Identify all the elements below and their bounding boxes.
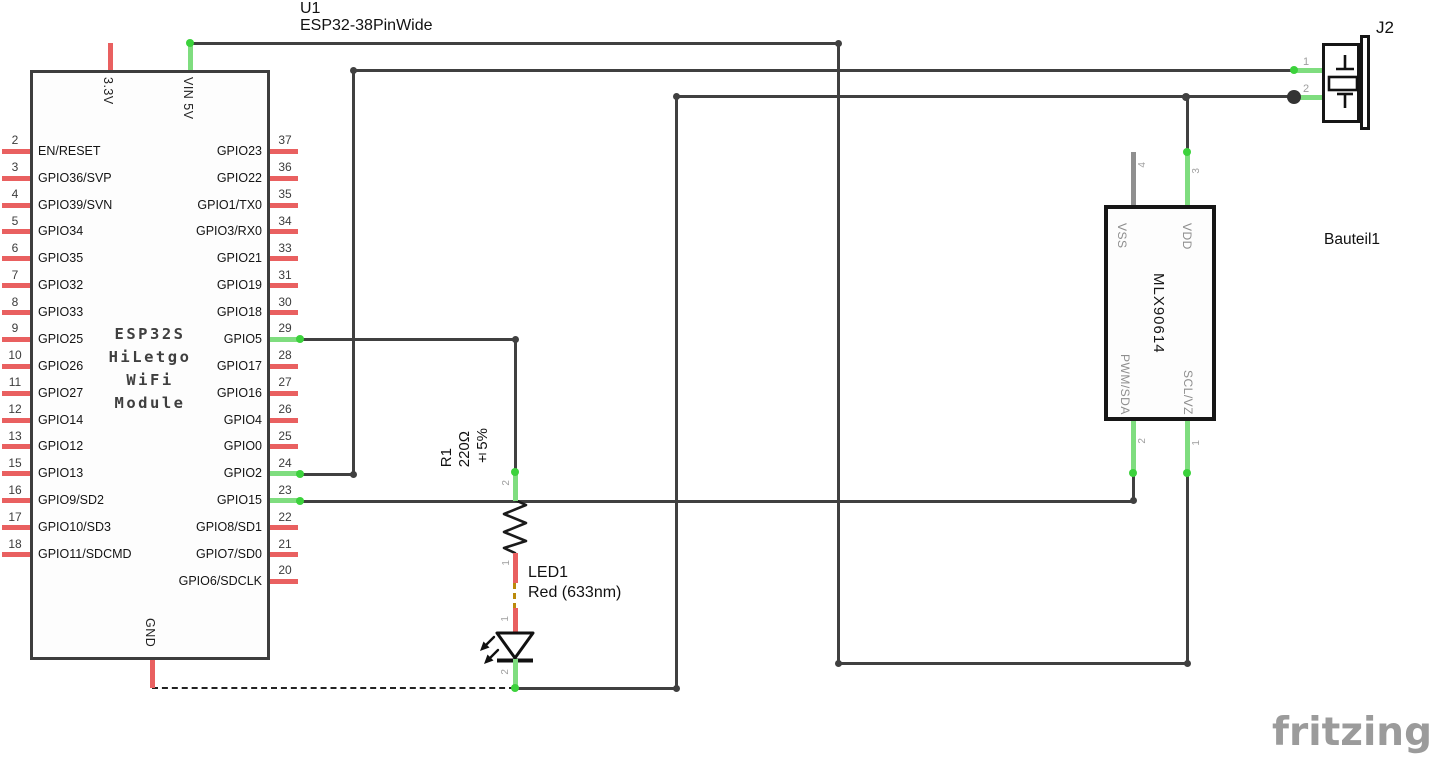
esp32-pin-stub-GPIO4[interactable] bbox=[270, 418, 298, 423]
esp32-pin-stub-GPIO33[interactable] bbox=[2, 310, 30, 315]
esp32-pin-label: GPIO3/RX0 bbox=[130, 224, 262, 239]
esp32-pin-label: GPIO25 bbox=[38, 332, 83, 347]
pin-stub-3v3[interactable] bbox=[108, 43, 113, 70]
esp32-pin-label: GPIO10/SD3 bbox=[38, 520, 111, 535]
esp32-pin-number: 12 bbox=[2, 402, 28, 416]
esp32-pin-label: GPIO35 bbox=[38, 251, 83, 266]
resistor-r1[interactable] bbox=[498, 498, 532, 556]
esp32-pin-stub-GPIO1/TX0[interactable] bbox=[270, 203, 298, 208]
pin-stub-gnd[interactable] bbox=[150, 660, 155, 688]
esp32-pin-label: GPIO32 bbox=[38, 278, 83, 293]
sensor-part-label[interactable]: Bauteil1 bbox=[1324, 231, 1380, 249]
esp32-pin-number: 36 bbox=[272, 160, 298, 174]
esp32-pin-number: 25 bbox=[272, 429, 298, 443]
wire[interactable] bbox=[190, 42, 838, 45]
j2-jack-symbol bbox=[1322, 43, 1360, 123]
u1-value-label[interactable]: ESP32-38PinWide bbox=[300, 17, 433, 35]
led1-ref-label[interactable]: LED1 bbox=[528, 564, 568, 582]
wire[interactable] bbox=[300, 500, 1133, 503]
esp32-pin-label: GPIO5 bbox=[130, 332, 262, 347]
esp32-pin-stub-GPIO5[interactable] bbox=[270, 337, 298, 342]
esp32-pin-number: 15 bbox=[2, 456, 28, 470]
r1-ref-label[interactable]: R1 bbox=[438, 448, 456, 467]
esp32-pin-label: GPIO16 bbox=[130, 386, 262, 401]
esp32-pin-stub-GPIO12[interactable] bbox=[2, 444, 30, 449]
esp32-pin-stub-GPIO22[interactable] bbox=[270, 176, 298, 181]
fritzing-watermark: fritzing bbox=[1272, 710, 1432, 755]
esp32-pin-number: 20 bbox=[272, 563, 298, 577]
esp32-pin-number: 21 bbox=[272, 537, 298, 551]
esp32-pin-stub-GPIO14[interactable] bbox=[2, 418, 30, 423]
esp32-pin-number: 23 bbox=[272, 483, 298, 497]
esp32-pin-stub-GPIO27[interactable] bbox=[2, 391, 30, 396]
j2-ref-label[interactable]: J2 bbox=[1376, 19, 1394, 37]
wire-bend-dot bbox=[512, 336, 519, 343]
esp32-pin-number: 22 bbox=[272, 510, 298, 524]
esp32-pin-stub-GPIO32[interactable] bbox=[2, 283, 30, 288]
esp32-pin-stub-GPIO25[interactable] bbox=[2, 337, 30, 342]
esp32-pin-stub-GPIO13[interactable] bbox=[2, 471, 30, 476]
esp32-pin-label: GPIO8/SD1 bbox=[130, 520, 262, 535]
wire[interactable] bbox=[1186, 97, 1189, 152]
esp32-pin-number: 4 bbox=[2, 187, 28, 201]
esp32-pin-number: 26 bbox=[272, 402, 298, 416]
wire[interactable] bbox=[838, 662, 1187, 665]
esp32-pin-stub-GPIO2[interactable] bbox=[270, 471, 298, 476]
led-emission-arrows bbox=[480, 637, 498, 664]
esp32-pin-number: 18 bbox=[2, 537, 28, 551]
led1-value-label[interactable]: Red (633nm) bbox=[528, 584, 621, 602]
esp32-pin-label: GPIO21 bbox=[130, 251, 262, 266]
esp32-pin-label: GPIO1/TX0 bbox=[130, 198, 262, 213]
wire-bend-dot bbox=[835, 660, 842, 667]
ratsnest-gnd[interactable] bbox=[152, 687, 515, 689]
esp32-pin-label: GPIO13 bbox=[38, 466, 83, 481]
esp32-pin-stub-GPIO3/RX0[interactable] bbox=[270, 229, 298, 234]
wire[interactable] bbox=[837, 43, 840, 663]
esp32-pin-stub-GPIO0[interactable] bbox=[270, 444, 298, 449]
esp32-pin-number: 28 bbox=[272, 348, 298, 362]
wire[interactable] bbox=[300, 473, 353, 476]
wire-bend-dot bbox=[350, 67, 357, 74]
esp32-pin-label: GPIO36/SVP bbox=[38, 171, 112, 186]
esp32-pin-stub-GPIO35[interactable] bbox=[2, 256, 30, 261]
led1-pin2-number: 2 bbox=[500, 669, 511, 675]
esp32-pin-number: 35 bbox=[272, 187, 298, 201]
pin-stub-vin5v[interactable] bbox=[188, 43, 193, 70]
esp32-pin-stub-GPIO17[interactable] bbox=[270, 364, 298, 369]
j2-plate[interactable] bbox=[1360, 35, 1370, 130]
wire[interactable] bbox=[514, 339, 517, 472]
wire[interactable] bbox=[515, 687, 676, 690]
wire[interactable] bbox=[1186, 473, 1189, 663]
pin-label-3v3: 3.3V bbox=[101, 77, 115, 105]
esp32-pin-label: GPIO33 bbox=[38, 305, 83, 320]
r1-pin2-stub[interactable] bbox=[513, 472, 518, 501]
esp32-pin-stub-GPIO8/SD1[interactable] bbox=[270, 525, 298, 530]
esp32-pin-label: GPIO0 bbox=[130, 439, 262, 454]
mlx-pin1-stub[interactable] bbox=[1185, 421, 1190, 473]
esp32-pin-number: 30 bbox=[272, 295, 298, 309]
esp32-pin-stub-GPIO16[interactable] bbox=[270, 391, 298, 396]
wire-bend-dot bbox=[1182, 93, 1190, 101]
j2-pin1-stub[interactable] bbox=[1295, 68, 1322, 73]
esp32-pin-stub-GPIO39/SVN[interactable] bbox=[2, 203, 30, 208]
esp32-pin-number: 3 bbox=[2, 160, 28, 174]
esp32-pin-number: 13 bbox=[2, 429, 28, 443]
esp32-pin-label: GPIO17 bbox=[130, 359, 262, 374]
wire[interactable] bbox=[300, 338, 515, 341]
esp32-pin-stub-GPIO6/SDCLK[interactable] bbox=[270, 579, 298, 584]
esp32-pin-stub-GPIO7/SD0[interactable] bbox=[270, 552, 298, 557]
esp32-pin-number: 29 bbox=[272, 321, 298, 335]
esp32-pin-label: GPIO39/SVN bbox=[38, 198, 112, 213]
esp32-pin-number: 24 bbox=[272, 456, 298, 470]
u1-ref-label[interactable]: U1 bbox=[300, 0, 320, 18]
schematic-canvas: U1 ESP32-38PinWide ESP32S HiLetgo WiFi M… bbox=[0, 0, 1437, 765]
wire[interactable] bbox=[676, 95, 1294, 98]
wire-bend-dot bbox=[1130, 497, 1137, 504]
esp32-pin-label: GPIO22 bbox=[130, 171, 262, 186]
esp32-pin-number: 10 bbox=[2, 348, 28, 362]
pin-connection-dot bbox=[1290, 66, 1298, 74]
j2-pin1-number: 1 bbox=[1303, 56, 1309, 68]
pin-connection-dot bbox=[511, 468, 519, 476]
pin-connection-dot bbox=[186, 39, 194, 47]
mlx90614-name: MLX90614 bbox=[1150, 205, 1167, 421]
pin-connection-dot bbox=[511, 684, 519, 692]
pin-label-vin5v: VIN 5V bbox=[181, 77, 195, 120]
mlx-pin2-number: 2 bbox=[1137, 438, 1148, 444]
pin-connection-dot bbox=[1129, 469, 1137, 477]
esp32-pin-number: 37 bbox=[272, 133, 298, 147]
pin-connection-dot bbox=[1183, 469, 1191, 477]
j2-pin2-number: 2 bbox=[1303, 83, 1309, 95]
mlx-pin3-stub[interactable] bbox=[1185, 152, 1190, 205]
wire[interactable] bbox=[675, 96, 678, 688]
esp32-pin-number: 5 bbox=[2, 214, 28, 228]
esp32-pin-stub-GPIO18[interactable] bbox=[270, 310, 298, 315]
mlx-pin4-number: 4 bbox=[1137, 162, 1148, 168]
esp32-pin-stub-GPIO26[interactable] bbox=[2, 364, 30, 369]
r1-value-label[interactable]: 220Ω bbox=[456, 431, 474, 467]
pin-label-gnd: GND bbox=[143, 618, 157, 647]
esp32-pin-stub-GPIO15[interactable] bbox=[270, 498, 298, 503]
mlx-pin4-stub[interactable] bbox=[1131, 152, 1136, 205]
esp32-pin-number: 2 bbox=[2, 133, 28, 147]
esp32-pin-label: GPIO23 bbox=[130, 144, 262, 159]
esp32-pin-label: GPIO12 bbox=[38, 439, 83, 454]
pin-connection-dot bbox=[296, 497, 304, 505]
wire-bend-dot bbox=[673, 93, 680, 100]
wire[interactable] bbox=[353, 69, 1294, 72]
esp32-pin-number: 31 bbox=[272, 268, 298, 282]
mlx-pin1-label: SCL/VZ bbox=[1181, 370, 1195, 415]
wire-bend-dot bbox=[673, 685, 680, 692]
esp32-pin-label: GPIO27 bbox=[38, 386, 83, 401]
led1-symbol[interactable] bbox=[468, 625, 538, 670]
esp32-pin-number: 34 bbox=[272, 214, 298, 228]
esp32-pin-label: GPIO4 bbox=[130, 413, 262, 428]
esp32-pin-number: 33 bbox=[272, 241, 298, 255]
esp32-pin-label: GPIO14 bbox=[38, 413, 83, 428]
pin-connection-dot bbox=[296, 470, 304, 478]
mlx-pin3-label: VDD bbox=[1180, 223, 1194, 250]
esp32-pin-stub-GPIO11/SDCMD[interactable] bbox=[2, 552, 30, 557]
junction-dot bbox=[1287, 90, 1301, 104]
pin-connection-dot bbox=[296, 335, 304, 343]
esp32-pin-label: GPIO7/SD0 bbox=[130, 547, 262, 562]
mlx-pin2-stub[interactable] bbox=[1131, 421, 1136, 473]
ratsnest-r1-led[interactable] bbox=[513, 583, 516, 609]
esp32-pin-number: 11 bbox=[2, 375, 28, 389]
mlx-pin4-label: VSS bbox=[1115, 223, 1129, 249]
esp32-pin-stub-GPIO19[interactable] bbox=[270, 283, 298, 288]
esp32-pin-stub-GPIO21[interactable] bbox=[270, 256, 298, 261]
esp32-pin-stub-GPIO23[interactable] bbox=[270, 149, 298, 154]
r1-pin1-stub[interactable] bbox=[513, 553, 518, 583]
wire-bend-dot bbox=[350, 471, 357, 478]
wire-bend-dot bbox=[1184, 660, 1191, 667]
esp32-pin-stub-EN/RESET[interactable] bbox=[2, 149, 30, 154]
esp32-pin-number: 8 bbox=[2, 295, 28, 309]
wire-bend-dot bbox=[835, 40, 842, 47]
esp32-pin-label: GPIO2 bbox=[130, 466, 262, 481]
esp32-pin-label: GPIO9/SD2 bbox=[38, 493, 104, 508]
esp32-pin-number: 7 bbox=[2, 268, 28, 282]
esp32-pin-number: 27 bbox=[272, 375, 298, 389]
esp32-pin-label: GPIO18 bbox=[130, 305, 262, 320]
esp32-pin-label: GPIO11/SDCMD bbox=[38, 547, 132, 562]
esp32-pin-label: GPIO26 bbox=[38, 359, 83, 374]
r1-tolerance-label[interactable]: ±5% bbox=[474, 428, 492, 467]
esp32-pin-label: GPIO15 bbox=[130, 493, 262, 508]
esp32-pin-stub-GPIO34[interactable] bbox=[2, 229, 30, 234]
esp32-pin-label: GPIO34 bbox=[38, 224, 83, 239]
esp32-pin-number: 16 bbox=[2, 483, 28, 497]
mlx-pin1-number: 1 bbox=[1191, 440, 1202, 446]
r1-pin2-number: 2 bbox=[501, 480, 512, 486]
esp32-pin-label: EN/RESET bbox=[38, 144, 101, 159]
r1-pin1-number: 1 bbox=[501, 560, 512, 566]
esp32-pin-number: 9 bbox=[2, 321, 28, 335]
esp32-pin-number: 6 bbox=[2, 241, 28, 255]
esp32-pin-label: GPIO6/SDCLK bbox=[130, 574, 262, 589]
wire[interactable] bbox=[352, 70, 355, 474]
esp32-pin-stub-GPIO36/SVP[interactable] bbox=[2, 176, 30, 181]
mlx-pin3-number: 3 bbox=[1191, 168, 1202, 174]
led1-pin1-number: 1 bbox=[500, 616, 511, 622]
esp32-pin-stub-GPIO9/SD2[interactable] bbox=[2, 498, 30, 503]
pin-connection-dot bbox=[1183, 148, 1191, 156]
esp32-pin-stub-GPIO10/SD3[interactable] bbox=[2, 525, 30, 530]
esp32-pin-label: GPIO19 bbox=[130, 278, 262, 293]
esp32-pin-number: 17 bbox=[2, 510, 28, 524]
mlx-pin2-label: PWM/SDA bbox=[1118, 354, 1132, 415]
